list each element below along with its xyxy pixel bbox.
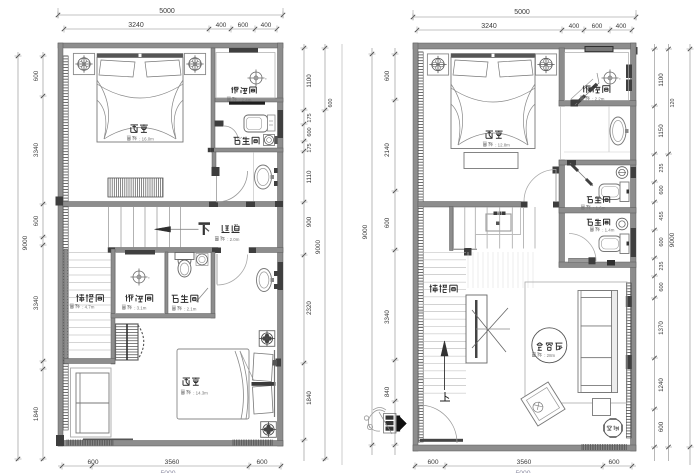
svg-text:600: 600 (427, 459, 438, 466)
svg-text:600: 600 (658, 421, 665, 432)
svg-text:1100: 1100 (658, 73, 665, 87)
svg-text:: 16.0m: : 16.0m (139, 136, 154, 141)
svg-text:400: 400 (569, 23, 580, 30)
svg-text:600: 600 (659, 237, 665, 246)
svg-text:900: 900 (306, 216, 313, 227)
svg-text:235: 235 (659, 164, 665, 173)
svg-text:1370: 1370 (658, 321, 665, 335)
svg-text:400: 400 (261, 22, 272, 29)
svg-text:600: 600 (608, 459, 619, 466)
svg-text:: 2.0m: : 2.0m (227, 237, 240, 242)
svg-text:2140: 2140 (384, 143, 391, 157)
svg-text:3340: 3340 (384, 310, 391, 324)
svg-text:600: 600 (659, 185, 665, 194)
svg-text:600: 600 (384, 217, 391, 228)
svg-text:175: 175 (307, 113, 313, 122)
svg-text:: 2.2m: : 2.2m (592, 96, 605, 101)
svg-text:: 2.4m: : 2.4m (239, 97, 252, 102)
svg-text:600: 600 (384, 70, 391, 81)
svg-text:3340: 3340 (33, 142, 40, 157)
svg-text:600: 600 (33, 215, 40, 226)
svg-text:9000: 9000 (22, 235, 29, 250)
svg-text:: 12.8m: : 12.8m (495, 142, 510, 147)
svg-text:: 2.1m: : 2.1m (184, 306, 197, 311)
svg-text:840: 840 (384, 386, 391, 397)
svg-text:455: 455 (659, 211, 665, 220)
svg-text:600: 600 (592, 23, 603, 30)
svg-text:5000: 5000 (159, 8, 175, 15)
svg-text:3240: 3240 (128, 22, 144, 29)
svg-text:: 3.1m: : 3.1m (134, 305, 147, 310)
svg-text:3560: 3560 (165, 459, 180, 466)
svg-text:3240: 3240 (481, 23, 497, 30)
svg-text:1840: 1840 (306, 391, 313, 405)
svg-text:9000: 9000 (315, 239, 322, 254)
svg-text:120: 120 (670, 99, 676, 108)
svg-text:: 1.6m: : 1.6m (593, 205, 606, 210)
svg-text:1840: 1840 (33, 406, 40, 421)
svg-text:: 14.3m: : 14.3m (193, 390, 208, 395)
svg-text:175: 175 (307, 143, 313, 152)
svg-text:2320: 2320 (306, 301, 313, 315)
svg-text:600: 600 (307, 127, 313, 136)
svg-text:600: 600 (87, 459, 98, 466)
svg-text:: 4.7m: : 4.7m (82, 304, 95, 309)
svg-text:1150: 1150 (658, 124, 665, 138)
svg-text:9000: 9000 (669, 232, 676, 247)
svg-text:1100: 1100 (306, 74, 313, 88)
svg-text:9000: 9000 (362, 224, 369, 239)
svg-text:600: 600 (238, 22, 249, 29)
svg-text:600: 600 (328, 99, 334, 108)
svg-text:400: 400 (216, 22, 227, 29)
svg-text:3560: 3560 (517, 459, 532, 466)
svg-text:3340: 3340 (33, 295, 40, 310)
svg-text:1110: 1110 (306, 170, 313, 183)
svg-text:600: 600 (33, 70, 40, 81)
svg-text:600: 600 (256, 459, 267, 466)
svg-text:: 28m: : 28m (544, 353, 555, 358)
svg-text:235: 235 (659, 262, 665, 271)
svg-text:5000: 5000 (514, 9, 530, 16)
svg-text:: 1.4m: : 1.4m (602, 227, 615, 232)
svg-text:400: 400 (616, 23, 627, 30)
svg-text:600: 600 (659, 282, 665, 291)
svg-text:1240: 1240 (658, 378, 665, 392)
